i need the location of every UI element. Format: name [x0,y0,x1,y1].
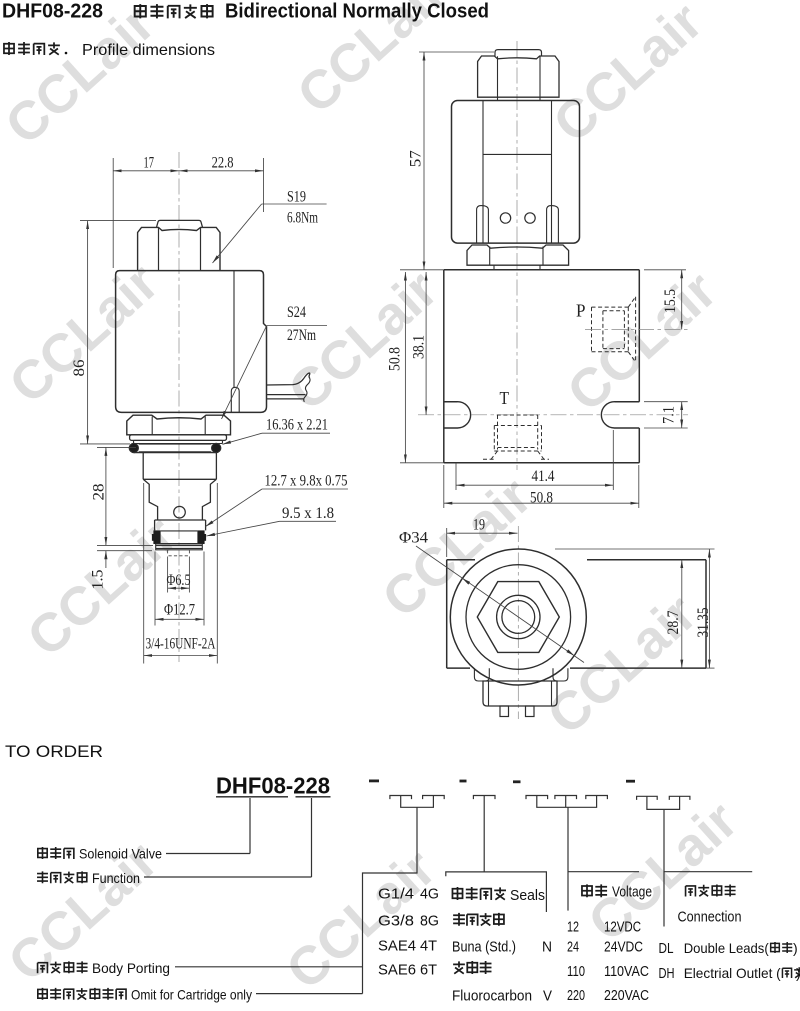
svg-text:31.35: 31.35 [695,608,712,638]
svg-text:12: 12 [567,919,579,936]
svg-text:110VAC: 110VAC [604,963,649,980]
svg-text:T: T [500,388,510,408]
svg-text:Φ12.7: Φ12.7 [164,602,195,619]
svg-text:DL: DL [659,940,674,957]
svg-text:): ) [796,965,800,981]
svg-text:3/4-16UNF-2A: 3/4-16UNF-2A [146,636,216,653]
svg-text:Φ34: Φ34 [399,530,428,547]
svg-text:Fluorocarbon: Fluorocarbon [452,988,532,1005]
svg-text:Voltage: Voltage [612,884,652,901]
svg-text:): ) [793,940,798,956]
svg-text:V: V [543,988,552,1005]
svg-text:27Nm: 27Nm [287,327,316,344]
svg-text:TO ORDER: TO ORDER [5,742,103,761]
svg-text:G3/8: G3/8 [378,913,414,930]
svg-text:28: 28 [91,484,108,501]
svg-text:Seals: Seals [510,887,545,904]
svg-text:19: 19 [473,517,485,534]
svg-text:Solenoid Valve: Solenoid Valve [79,846,162,862]
svg-text:8G: 8G [420,913,439,930]
svg-text:4G: 4G [420,886,439,903]
svg-text:N: N [542,939,552,956]
svg-text:Connection: Connection [678,909,742,926]
svg-text:Φ6.5: Φ6.5 [167,572,191,589]
svg-text:38.1: 38.1 [411,335,428,359]
svg-text:22.8: 22.8 [212,154,234,171]
svg-text:S19: S19 [287,189,306,206]
svg-text:50.8: 50.8 [530,489,553,506]
svg-text:7.1: 7.1 [661,406,678,424]
svg-text:12.7 x 9.8x 0.75: 12.7 x 9.8x 0.75 [265,473,348,490]
svg-text:4T: 4T [420,938,437,955]
svg-text:Double Leads(: Double Leads( [684,940,769,956]
svg-text:9.5 x 1.8: 9.5 x 1.8 [282,505,334,522]
svg-text:16.36 x 2.21: 16.36 x 2.21 [266,417,328,434]
svg-text:1.5: 1.5 [90,570,107,590]
svg-text:6T: 6T [420,962,437,979]
svg-text:DHF08-228: DHF08-228 [216,773,330,799]
svg-text:G1/4: G1/4 [378,886,414,903]
svg-text:DHF08-228: DHF08-228 [2,1,103,23]
svg-text:28.7: 28.7 [665,611,682,635]
svg-text:SAE6: SAE6 [378,962,416,979]
svg-text:Electrial Outlet (: Electrial Outlet ( [684,965,781,981]
svg-text:41.4: 41.4 [532,468,555,485]
svg-text:SAE4: SAE4 [378,938,416,955]
svg-text:Function: Function [92,870,140,886]
svg-text:220VAC: 220VAC [604,987,649,1004]
svg-text:Bidirectional Normally Closed: Bidirectional Normally Closed [225,1,489,23]
svg-text:24: 24 [567,939,579,956]
svg-text:DH: DH [659,965,675,982]
svg-text:6.8Nm: 6.8Nm [287,210,318,227]
svg-text:50.8: 50.8 [387,347,404,371]
svg-text:Body Porting: Body Porting [92,960,170,976]
svg-text:57: 57 [408,150,425,167]
svg-text:Omit for Cartridge only: Omit for Cartridge only [131,987,252,1003]
svg-text:12VDC: 12VDC [604,919,641,936]
svg-text:110: 110 [567,963,585,980]
svg-text:15.5: 15.5 [662,289,679,313]
svg-text:17: 17 [143,154,154,171]
svg-text:Profile dimensions: Profile dimensions [82,42,215,59]
svg-text:S24: S24 [287,304,306,321]
svg-text:24VDC: 24VDC [604,939,643,956]
svg-text:Buna (Std.): Buna (Std.) [452,939,516,956]
svg-text:220: 220 [567,987,585,1004]
svg-text:86: 86 [71,360,88,377]
svg-text:P: P [576,301,586,321]
